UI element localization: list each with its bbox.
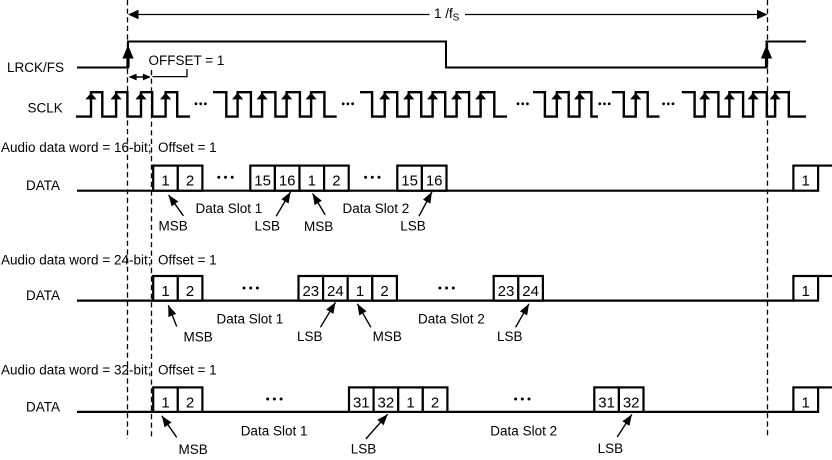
svg-text:MSB: MSB <box>304 219 333 234</box>
svg-text:23: 23 <box>498 283 515 300</box>
svg-text:DATA: DATA <box>26 399 60 414</box>
svg-text:MSB: MSB <box>159 219 188 234</box>
svg-text:23: 23 <box>302 283 319 300</box>
svg-text:1: 1 <box>161 283 169 300</box>
svg-text:1: 1 <box>308 173 316 190</box>
svg-text:2: 2 <box>380 283 388 300</box>
svg-text:DATA: DATA <box>26 288 60 303</box>
svg-text:LSB: LSB <box>598 441 624 456</box>
svg-text:Data Slot 2: Data Slot 2 <box>418 312 485 327</box>
svg-text:Data Slot 1: Data Slot 1 <box>217 312 284 327</box>
svg-text:1 /f: 1 /f <box>434 6 453 21</box>
svg-text:1: 1 <box>406 394 414 411</box>
svg-text:LSB: LSB <box>297 329 323 344</box>
svg-text:Data Slot 2: Data Slot 2 <box>343 201 410 216</box>
svg-text:LSB: LSB <box>351 441 377 456</box>
svg-text:SCLK: SCLK <box>28 100 63 115</box>
svg-text:LSB: LSB <box>497 329 523 344</box>
svg-text:1: 1 <box>802 283 810 300</box>
svg-text:2: 2 <box>431 394 439 411</box>
svg-text:16: 16 <box>426 173 443 190</box>
svg-text:Data Slot 1: Data Slot 1 <box>196 201 263 216</box>
svg-text:15: 15 <box>254 173 271 190</box>
svg-text:Data Slot 2: Data Slot 2 <box>490 423 557 438</box>
svg-text:Audio data word = 32-bit;: Audio data word = 32-bit; <box>1 363 151 378</box>
svg-text:2: 2 <box>186 394 194 411</box>
svg-text:31: 31 <box>598 394 615 411</box>
svg-text:Offset = 1: Offset = 1 <box>158 363 217 378</box>
svg-text:OFFSET = 1: OFFSET = 1 <box>149 53 225 68</box>
svg-text:DATA: DATA <box>26 178 60 193</box>
svg-text:1: 1 <box>161 394 169 411</box>
svg-text:32: 32 <box>623 394 640 411</box>
svg-text:1: 1 <box>161 173 169 190</box>
svg-text:2: 2 <box>186 283 194 300</box>
svg-text:LSB: LSB <box>255 219 281 234</box>
svg-text:MSB: MSB <box>184 329 213 344</box>
svg-text:1: 1 <box>356 283 364 300</box>
svg-text:15: 15 <box>401 173 418 190</box>
svg-text:2: 2 <box>332 173 340 190</box>
svg-text:LSB: LSB <box>400 219 426 234</box>
svg-text:MSB: MSB <box>373 329 402 344</box>
svg-text:24: 24 <box>522 283 539 300</box>
svg-text:1: 1 <box>802 173 810 190</box>
svg-text:Data Slot 1: Data Slot 1 <box>241 423 308 438</box>
svg-text:1: 1 <box>802 394 810 411</box>
svg-text:S: S <box>453 12 460 23</box>
svg-text:Audio data word = 16-bit;: Audio data word = 16-bit; <box>1 140 151 155</box>
svg-text:24: 24 <box>327 283 344 300</box>
svg-text:32: 32 <box>378 394 395 411</box>
svg-text:2: 2 <box>186 173 194 190</box>
svg-text:MSB: MSB <box>179 442 208 457</box>
svg-text:16: 16 <box>279 173 296 190</box>
svg-text:Audio data word = 24-bit;: Audio data word = 24-bit; <box>1 252 151 267</box>
svg-text:31: 31 <box>353 394 370 411</box>
svg-text:Offset = 1: Offset = 1 <box>158 140 217 155</box>
svg-text:LRCK/FS: LRCK/FS <box>7 60 64 75</box>
svg-text:Offset = 1: Offset = 1 <box>158 252 217 267</box>
